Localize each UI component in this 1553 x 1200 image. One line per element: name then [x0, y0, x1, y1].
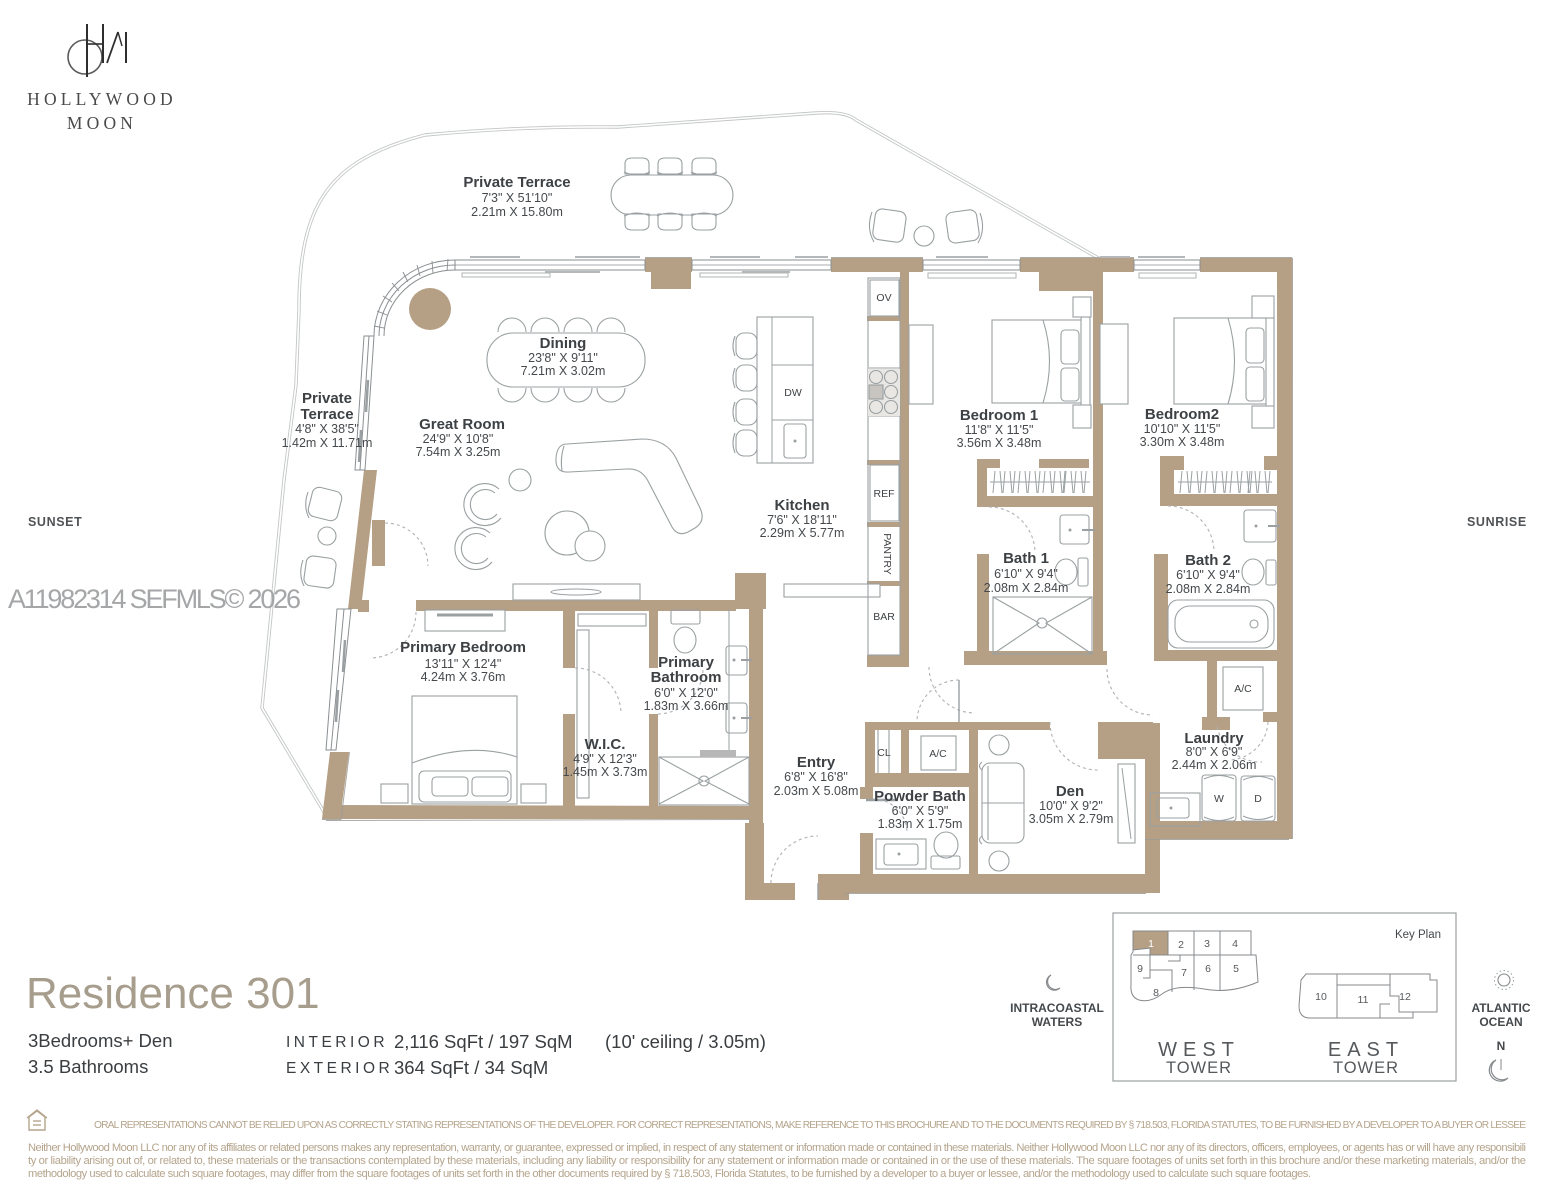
- svg-text:HOLLYWOOD: HOLLYWOOD: [27, 89, 177, 109]
- svg-text:10'0" X 9'2": 10'0" X 9'2": [1039, 799, 1103, 813]
- svg-text:OCEAN: OCEAN: [1479, 1015, 1522, 1029]
- svg-text:ty or liability arising out of: ty or liability arising out of, or relat…: [28, 1155, 1526, 1167]
- svg-text:4.24m X 3.76m: 4.24m X 3.76m: [421, 670, 506, 684]
- svg-text:SUNRISE: SUNRISE: [1467, 515, 1527, 529]
- svg-text:4'9" X 12'3": 4'9" X 12'3": [573, 752, 637, 766]
- svg-text:WEST: WEST: [1158, 1039, 1240, 1061]
- svg-text:10'10" X 11'5": 10'10" X 11'5": [1144, 422, 1221, 436]
- svg-text:INTRACOASTAL: INTRACOASTAL: [1010, 1001, 1104, 1015]
- svg-text:23'8" X 9'11": 23'8" X 9'11": [528, 351, 598, 365]
- svg-text:1.83m X 3.66m: 1.83m X 3.66m: [644, 699, 729, 713]
- svg-text:WATERS: WATERS: [1032, 1015, 1082, 1029]
- svg-text:8: 8: [1153, 987, 1159, 999]
- svg-text:12: 12: [1399, 991, 1411, 1003]
- svg-text:methodology used to calculate: methodology used to calculate such squar…: [28, 1168, 1311, 1180]
- svg-text:Key Plan: Key Plan: [1395, 929, 1441, 941]
- svg-text:364 SqFt / 34 SqM: 364 SqFt / 34 SqM: [394, 1057, 548, 1078]
- svg-text:2.21m X 15.80m: 2.21m X 15.80m: [471, 205, 563, 219]
- svg-text:Neither Hollywood Moon LLC nor: Neither Hollywood Moon LLC nor any of it…: [28, 1142, 1526, 1154]
- svg-text:REF: REF: [874, 488, 895, 500]
- svg-text:A/C: A/C: [1234, 683, 1252, 695]
- svg-text:6: 6: [1205, 963, 1211, 975]
- svg-text:6'0" X 12'0": 6'0" X 12'0": [654, 686, 718, 700]
- svg-text:SUNSET: SUNSET: [28, 515, 82, 529]
- svg-text:Private Terrace: Private Terrace: [463, 174, 570, 191]
- svg-text:BAR: BAR: [873, 611, 895, 623]
- svg-text:OV: OV: [876, 292, 891, 304]
- svg-text:PANTRY: PANTRY: [881, 533, 893, 575]
- svg-text:24'9" X 10'8": 24'9" X 10'8": [423, 432, 494, 446]
- svg-text:Dining: Dining: [540, 335, 587, 352]
- svg-text:A11982314 SEFMLS© 2026: A11982314 SEFMLS© 2026: [8, 584, 301, 614]
- svg-text:CL: CL: [877, 747, 891, 759]
- svg-text:3Bedrooms+ Den: 3Bedrooms+ Den: [28, 1030, 173, 1051]
- svg-text:1.42m X 11.71m: 1.42m X 11.71m: [282, 436, 373, 450]
- svg-text:2.44m X 2.06m: 2.44m X 2.06m: [1172, 758, 1257, 772]
- svg-text:Kitchen: Kitchen: [774, 497, 829, 514]
- svg-text:2.29m X 5.77m: 2.29m X 5.77m: [760, 526, 845, 540]
- svg-text:7.21m X 3.02m: 7.21m X 3.02m: [521, 364, 606, 378]
- svg-text:5: 5: [1233, 963, 1239, 975]
- svg-text:4: 4: [1232, 938, 1238, 950]
- svg-text:EXTERIOR: EXTERIOR: [286, 1060, 393, 1077]
- svg-text:2.08m X 2.84m: 2.08m X 2.84m: [1166, 582, 1251, 596]
- svg-text:10: 10: [1315, 991, 1327, 1003]
- svg-text:Great Room: Great Room: [419, 416, 505, 433]
- svg-text:2.03m X 5.08m: 2.03m X 5.08m: [774, 784, 859, 798]
- svg-text:2: 2: [1178, 939, 1184, 951]
- svg-text:ATLANTIC: ATLANTIC: [1471, 1001, 1530, 1015]
- svg-text:Bedroom 1: Bedroom 1: [960, 407, 1038, 424]
- svg-text:TOWER: TOWER: [1166, 1059, 1232, 1077]
- svg-text:(10' ceiling / 3.05m): (10' ceiling / 3.05m): [605, 1031, 766, 1052]
- svg-text:3.05m X 2.79m: 3.05m X 2.79m: [1029, 812, 1114, 826]
- svg-text:Entry: Entry: [797, 754, 836, 771]
- svg-text:6'8" X 16'8": 6'8" X 16'8": [784, 770, 848, 784]
- svg-text:6'10" X 9'4": 6'10" X 9'4": [994, 567, 1058, 581]
- svg-text:Bathroom: Bathroom: [651, 669, 722, 686]
- svg-text:11: 11: [1358, 994, 1369, 1006]
- svg-text:Bedroom2: Bedroom2: [1145, 406, 1219, 423]
- svg-text:7: 7: [1181, 967, 1187, 979]
- svg-text:Primary Bedroom: Primary Bedroom: [400, 639, 526, 656]
- svg-text:3: 3: [1204, 938, 1210, 950]
- svg-text:6'10" X 9'4": 6'10" X 9'4": [1176, 568, 1240, 582]
- svg-text:Residence 301: Residence 301: [26, 969, 320, 1018]
- svg-text:1.45m X 3.73m: 1.45m X 3.73m: [563, 765, 648, 779]
- svg-text:D: D: [1254, 793, 1262, 805]
- svg-text:3.5 Bathrooms: 3.5 Bathrooms: [28, 1056, 148, 1077]
- svg-text:MOON: MOON: [67, 113, 137, 133]
- svg-text:W: W: [1214, 793, 1224, 805]
- svg-text:DW: DW: [784, 387, 802, 399]
- svg-text:Private: Private: [302, 390, 352, 407]
- svg-text:W.I.C.: W.I.C.: [585, 736, 626, 753]
- svg-text:N: N: [1497, 1039, 1506, 1053]
- svg-text:6'0" X 5'9": 6'0" X 5'9": [892, 804, 949, 818]
- svg-text:Bath 2: Bath 2: [1185, 552, 1231, 569]
- svg-text:ORAL REPRESENTATIONS CANNOT BE: ORAL REPRESENTATIONS CANNOT BE RELIED UP…: [94, 1120, 1526, 1131]
- svg-text:Terrace: Terrace: [300, 406, 353, 423]
- svg-text:7'3" X 51'10": 7'3" X 51'10": [482, 191, 553, 205]
- svg-text:1.83m X 1.75m: 1.83m X 1.75m: [878, 817, 963, 831]
- svg-text:13'11" X 12'4": 13'11" X 12'4": [425, 657, 502, 671]
- svg-text:4'8" X 38'5": 4'8" X 38'5": [295, 422, 359, 436]
- svg-text:3.30m X 3.48m: 3.30m X 3.48m: [1140, 435, 1225, 449]
- svg-text:7.54m X 3.25m: 7.54m X 3.25m: [416, 445, 501, 459]
- svg-text:Den: Den: [1056, 783, 1084, 800]
- svg-text:A/C: A/C: [929, 748, 947, 760]
- svg-text:EAST: EAST: [1328, 1039, 1404, 1061]
- svg-text:9: 9: [1137, 963, 1143, 975]
- svg-text:11'8" X 11'5": 11'8" X 11'5": [965, 423, 1034, 437]
- svg-text:1: 1: [1148, 938, 1154, 950]
- svg-text:7'6" X 18'11": 7'6" X 18'11": [767, 513, 837, 527]
- svg-text:2,116 SqFt / 197 SqM: 2,116 SqFt / 197 SqM: [394, 1031, 573, 1052]
- svg-text:Powder Bath: Powder Bath: [874, 788, 966, 805]
- svg-text:8'0" X 6'9": 8'0" X 6'9": [1186, 745, 1243, 759]
- svg-text:Bath 1: Bath 1: [1003, 550, 1049, 567]
- svg-text:INTERIOR: INTERIOR: [286, 1034, 388, 1051]
- svg-text:TOWER: TOWER: [1333, 1059, 1399, 1077]
- svg-text:2.08m X 2.84m: 2.08m X 2.84m: [984, 581, 1069, 595]
- svg-text:3.56m X 3.48m: 3.56m X 3.48m: [957, 436, 1042, 450]
